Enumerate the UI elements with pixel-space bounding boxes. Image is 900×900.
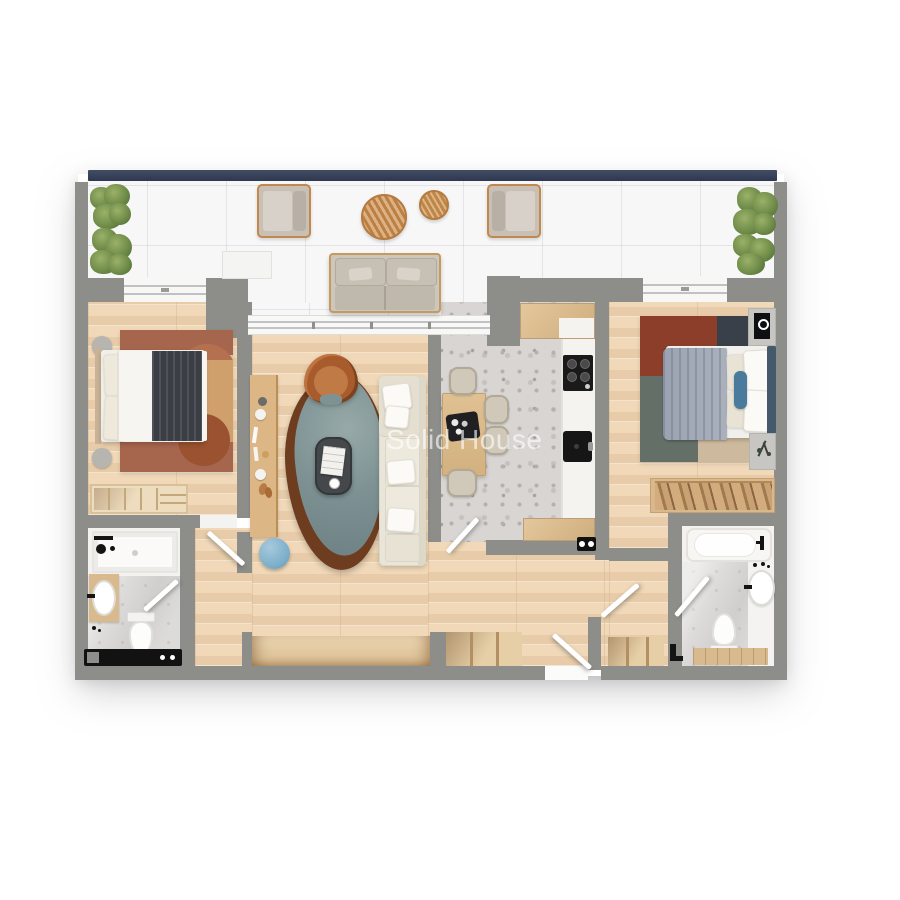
balcony-plant-1 (90, 184, 132, 230)
console-decor-tan-oval (264, 486, 273, 498)
hob-knob (585, 384, 590, 389)
sofa-lumbar-pillow (349, 267, 373, 281)
kitchen-power-socket (577, 537, 596, 551)
toiletry-dot (761, 562, 765, 566)
wardrobe-compartments (94, 488, 158, 510)
bedroom-left-wardrobe (90, 484, 188, 514)
shower-fixture (94, 536, 120, 556)
closet-divider (470, 632, 473, 666)
armchair-seat-cushion (506, 191, 535, 231)
window-frame-line (643, 284, 727, 286)
washbasin-oval (92, 580, 116, 616)
bedroom-right-bed (663, 346, 776, 440)
bedroom-right-nightstand-bottom (749, 433, 776, 470)
living-room-sliding-door (248, 315, 490, 335)
toiletry-dot (92, 626, 96, 630)
sofa-seat-gap (384, 286, 386, 310)
armchair-opening (320, 394, 342, 405)
dining-chair-right-2 (484, 426, 509, 455)
armchair-back-cushion (293, 191, 306, 231)
balcony-round-table-small (419, 190, 449, 220)
wall-top-a (86, 278, 124, 302)
dining-coffee-tray (445, 411, 480, 442)
balcony-plant-2 (90, 228, 134, 276)
floor-plan: Solid House (0, 0, 900, 900)
tub-faucet-bar (756, 541, 764, 544)
console-decor-tan-dot (262, 451, 269, 458)
toilet-bowl (712, 613, 736, 646)
bathroom-right-washbasin (748, 570, 775, 606)
wardrobe-hanging-clothes (655, 483, 772, 510)
console-decor-white-ball (255, 469, 266, 480)
window-frame-line (124, 285, 206, 287)
wall-top-pier-c (487, 276, 520, 346)
wall-outer-bottom-left (75, 666, 545, 680)
wall-bathroom-left-right (180, 525, 195, 666)
kitchen-gas-hob (563, 355, 593, 391)
threshold-bedroom-left (200, 515, 237, 528)
radiator-dot (170, 655, 175, 660)
plant-foliage (753, 213, 776, 235)
radiator-panel (87, 652, 99, 663)
coffee-cup (329, 478, 340, 489)
wall-kitchen-left (428, 315, 441, 542)
sink-drain (574, 444, 579, 449)
armchair-back-cushion (492, 191, 505, 231)
wall-outer-left (75, 182, 88, 680)
dining-chair-top (449, 367, 477, 395)
dining-chair-right-1 (484, 395, 509, 424)
basin-faucet (87, 594, 95, 598)
kitchen-sink (563, 431, 592, 462)
balcony-storage-box (222, 251, 272, 279)
bathroom-right-bathtub (686, 528, 772, 562)
hallway-shelved-closet-2 (608, 637, 664, 666)
toiletry-dot (98, 629, 101, 632)
wall-bedroom-left-right-stub (237, 532, 252, 573)
bed-gray-blanket (663, 348, 727, 440)
radiator-dot (160, 655, 165, 660)
dining-chair-bottom (447, 469, 477, 497)
hallway-shelved-closet-1 (446, 632, 522, 666)
window-handle (161, 288, 169, 292)
sofa-pillow (384, 405, 410, 429)
window-handle (681, 287, 689, 291)
closet-divider (626, 637, 629, 666)
sink-faucet (588, 442, 593, 451)
wardrobe-shelf-column (160, 488, 186, 510)
shower-bar (94, 536, 113, 540)
slider-handle (370, 322, 373, 329)
bathroom-left-radiator (84, 649, 182, 666)
kitchen-upper-cabinet (520, 303, 595, 339)
slider-track-line (248, 327, 490, 329)
shower-drain (132, 550, 138, 556)
socket-outlet (588, 541, 594, 547)
slider-track-line (248, 321, 490, 323)
closet-pier (430, 632, 446, 666)
bedroom-left-side-table-bottom (92, 448, 112, 468)
balcony-railing (88, 170, 777, 181)
hob-burner (580, 359, 590, 369)
balcony-round-table-large (361, 194, 407, 240)
balcony-armchair-left (257, 184, 311, 238)
closet-divider (496, 632, 499, 666)
console-decor-dark-dot (258, 397, 267, 406)
hob-burner (567, 372, 577, 382)
bed-headboard (767, 346, 776, 438)
sofa-pillow (386, 459, 416, 485)
art-frame-ring (758, 319, 769, 330)
plant-foliage (108, 254, 132, 275)
door-stop-mark (670, 656, 683, 661)
cabinet-white-module (559, 318, 594, 338)
console-decor-stick (253, 447, 258, 461)
tray-cup (455, 428, 462, 435)
bedroom-left-bed (95, 348, 205, 444)
sofa-lumbar-pillow (397, 267, 421, 281)
bathroom-left-vanity (89, 574, 119, 622)
shower-head (96, 544, 106, 554)
plant-foliage (737, 253, 765, 275)
basin-faucet (744, 585, 752, 589)
wall-kitchen-right (595, 302, 609, 560)
armchair-seat-cushion (263, 191, 292, 231)
console-decor-stick (252, 427, 258, 443)
shower-knob (110, 546, 115, 551)
closet-pier (242, 632, 252, 666)
tray-cup (451, 419, 459, 427)
slider-handle (312, 322, 315, 329)
magazine (320, 446, 345, 476)
console-decor-white-ball (255, 409, 266, 420)
sofa-seat-cushion (385, 534, 420, 562)
threshold-entry (545, 666, 588, 680)
toiletry-dot (767, 565, 770, 568)
living-room-sectional-sofa (379, 376, 426, 566)
hob-burner (580, 372, 590, 382)
hob-burner (567, 359, 577, 369)
living-room-console (250, 375, 278, 537)
wall-top-e (727, 278, 774, 302)
bedroom-left-window (124, 278, 206, 302)
wall-entry-pier (588, 617, 601, 670)
sofa-pillow (386, 507, 416, 533)
bedroom-right-wardrobe (650, 478, 775, 513)
window-frame-line (124, 293, 206, 295)
wall-outer-bottom-right (601, 666, 787, 680)
hallway-built-in-closet (252, 636, 430, 666)
closet-divider (646, 637, 649, 666)
balcony-outdoor-sofa (329, 253, 441, 313)
bathtub-basin (694, 533, 756, 557)
bedroom-right-window (643, 276, 727, 302)
balcony-plant-3 (733, 187, 779, 237)
bedroom-right-nightstand-top (748, 308, 776, 346)
tray-cup (461, 420, 468, 427)
bathroom-right-wood-mat (693, 648, 768, 665)
socket-outlet (579, 541, 585, 547)
living-room-blue-pouf (259, 538, 290, 569)
living-room-coffee-table (315, 437, 352, 495)
plant-foliage (109, 203, 131, 225)
plant-leaf-dot (767, 452, 771, 456)
window-frame-line (643, 292, 727, 294)
wall-bathroom-right-top (668, 512, 775, 526)
wall-top-d (520, 278, 643, 302)
living-room-leather-armchair (304, 354, 358, 404)
bed-blue-bolster (734, 371, 747, 409)
balcony-plant-4 (731, 234, 777, 276)
plant-leaf-dot (757, 448, 762, 453)
bed-runner-charcoal (152, 351, 202, 441)
toiletry-dot (753, 563, 757, 567)
balcony-armchair-right (487, 184, 541, 238)
slider-handle (428, 322, 431, 329)
